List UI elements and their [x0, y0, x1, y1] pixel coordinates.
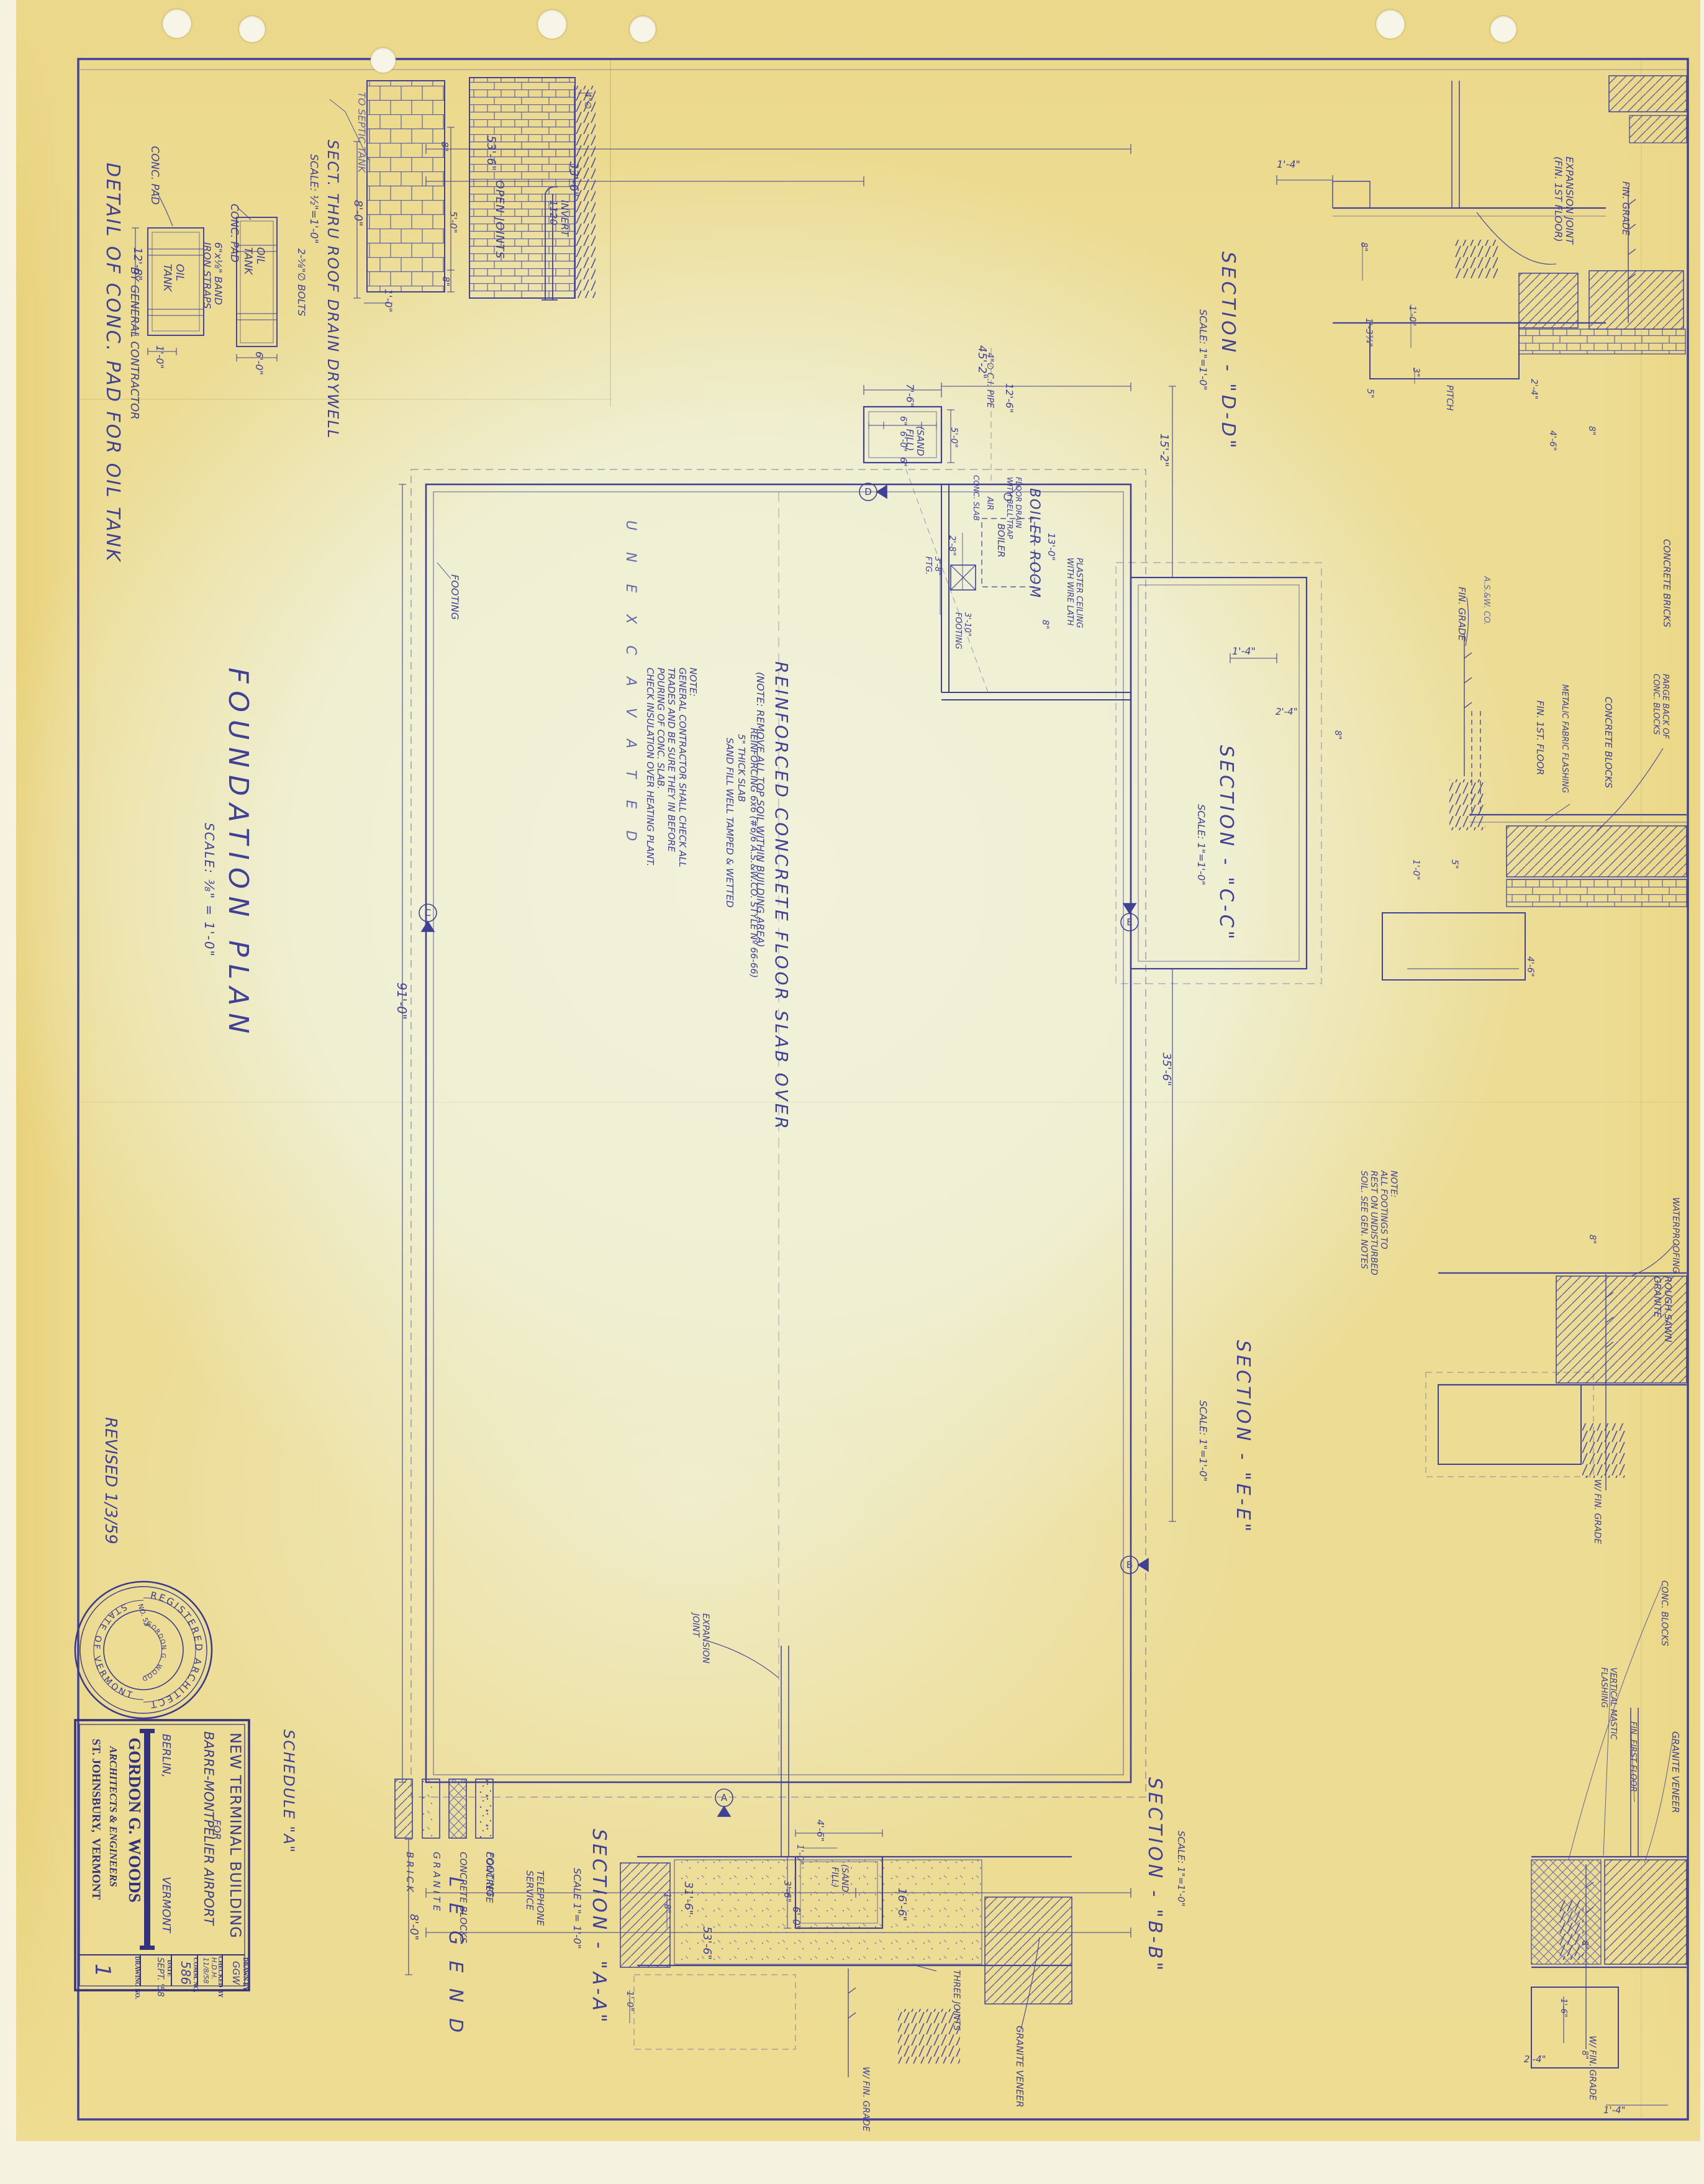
section-ee-lines	[1426, 1243, 1687, 1490]
oil-pad-title: DETAIL OF CONC. PAD FOR OIL TANK	[102, 163, 124, 563]
asw-note: A.S.&W. CO.	[1481, 576, 1490, 625]
drywell-lines	[330, 78, 596, 303]
punch-hole	[538, 10, 566, 39]
linework: D C E B A	[16, 0, 1704, 2184]
slab-note-thickness: 5" THICK SLAB	[736, 734, 746, 802]
dim-53-6-bottom: 53'-6"	[700, 1926, 713, 1960]
svg-text:GORDON G. WOODS: GORDON G. WOODS	[140, 1520, 1704, 1682]
dim-1-4-cc: 1'-4"	[1232, 646, 1256, 657]
dim-31-6: 31'-6"	[681, 1882, 694, 1915]
oil-tank-label-1: OIL TANK	[161, 264, 185, 291]
three-joints-label: THREE JOINTS	[951, 1970, 961, 2031]
ci-pipe-note: 4"∅ C.I. PIPE	[985, 353, 995, 408]
fin-grade-bb: W/ FIN. GRADE	[1587, 2036, 1597, 2100]
dim-16-6: 16'-6"	[895, 1888, 908, 1921]
boiler-room-label: BOILER ROOM	[1026, 488, 1042, 599]
dim-8-0-drywell: 8'-0"	[351, 200, 364, 227]
dim-2-4-dd: 2'-4"	[1529, 379, 1539, 399]
dim-1-0-cc: 1'-0"	[1411, 859, 1421, 880]
tb-project-line1: NEW TERMINAL BUILDING	[226, 1733, 243, 1939]
concrete-blocks-label-cc: CONCRETE BLOCKS	[1603, 697, 1613, 788]
svg-text:A: A	[721, 1792, 728, 1803]
fold-crease-vertical-right	[1641, 59, 1642, 2119]
gc-note: NOTE: GENERAL CONTRACTOR SHALL CHECK ALL…	[645, 668, 698, 867]
schedule-a-label: SCHEDULE "A"	[279, 1729, 297, 1854]
dim-6-0-bottom: 6'-0"	[791, 1906, 802, 1930]
fin-first-floor-bb: FIN. FIRST FLOOR	[1628, 1721, 1637, 1792]
conc-blocks-bb: CONC. BLOCKS	[1659, 1580, 1669, 1646]
fin-grade-aa: W/ FIN. GRADE	[861, 2067, 871, 2131]
drawing-sheet: D C E B A	[16, 0, 1700, 2141]
section-aa-lines	[620, 1641, 1072, 2077]
dim-33-6: 33'-6"	[566, 161, 580, 197]
slab-note-reinforcing: REINFORCING 6x6 (#6/6 A.S.&W.CO. STYLE N…	[748, 728, 759, 978]
dim-3-6-pit: 3'-6"	[782, 1880, 792, 1903]
metalic-flashing-label: METALIC FABRIC FLASHING	[1559, 684, 1569, 793]
tb-firm-city: ST. JOHNSBURY, VERMONT	[89, 1739, 102, 1900]
tb-date-label: DATE	[166, 1960, 173, 1977]
dim-2-4-cc: 2'-4"	[1276, 707, 1298, 717]
svg-text:E: E	[1126, 917, 1132, 928]
section-dd-scale: SCALE: 1"=1'-0"	[1197, 309, 1208, 391]
dim-8b-bb: 8"	[1579, 2050, 1588, 2059]
tb-dwg-label: DRAWING NO.	[134, 1956, 141, 1999]
dim-8a-bb: 8"	[1579, 1941, 1588, 1949]
section-ee-title: SECTION - "E-E"	[1232, 1340, 1254, 1534]
punch-hole	[163, 9, 191, 38]
dim-1-0-oilpad: 1'-0"	[154, 345, 165, 369]
open-joints-label: OPEN JOINTS	[492, 180, 505, 259]
dim-2-4-bb: 2'-4"	[1524, 2054, 1546, 2065]
foundation-plan-title: FOUNDATION PLAN	[222, 668, 253, 1041]
foundation-plan-scale: SCALE: ⅜" = 1'-0"	[202, 823, 216, 958]
dim-1-0-dd: 1'-0"	[1407, 306, 1417, 326]
legend-swatch-concrete	[476, 1779, 493, 1838]
dim-1-4-dd: 1'-4"	[1277, 159, 1300, 170]
footing-label-1: FOOTING	[449, 574, 460, 620]
oil-pad-conc-pad-label-2: CONC. PAD	[227, 204, 240, 263]
dim-1-0-aa: 1'-0"	[625, 1991, 635, 2011]
tb-state: VERMONT	[159, 1877, 172, 1933]
foundation-plan-lines	[399, 144, 1321, 1975]
section-aa-title: SECTION - "A-A"	[588, 1829, 610, 2026]
fin-grade-dd: FIN. GRADE	[1620, 181, 1631, 235]
granite-veneer-bb: GRANITE VENEER	[1670, 1731, 1680, 1813]
punch-hole	[239, 16, 265, 42]
boiler-label: BOILER	[995, 523, 1006, 558]
telephone-service-note: TELEPHONE SERVICE	[524, 1870, 546, 1926]
oil-pad-by: BY GENERAL CONTRACTOR	[127, 267, 140, 420]
tb-checked-value: H.D.H. 11/8/58	[202, 1957, 217, 1983]
fin-first-floor-cc: FIN. 1ST. FLOOR	[1534, 700, 1545, 775]
dim-8-cc: 8"	[1333, 730, 1343, 740]
tb-city: BERLIN,	[159, 1734, 172, 1778]
dim-1-6-bb: 1'-6"	[1558, 1998, 1567, 2018]
dim-5-dd: 5"	[1365, 389, 1375, 398]
sheet-border	[78, 59, 1688, 2119]
dim-8b-dd: 8"	[1587, 426, 1597, 435]
dim-12-8: 12'-8"	[130, 247, 143, 281]
punch-hole	[371, 48, 396, 73]
punch-hole	[1490, 16, 1516, 42]
section-cc-scale: SCALE: 1"=1'-0"	[1195, 804, 1207, 886]
drywell-title: SECT. THRU ROOF DRAIN DRYWELL	[324, 140, 341, 439]
legend-swatches	[395, 1779, 493, 1838]
dim-5-0-drywell: 5'-0"	[448, 211, 458, 233]
dim-3-8-ftg: 3'-8" FTG.	[923, 556, 941, 576]
section-bb-lines	[1531, 1585, 1687, 2105]
legend-swatch-granite	[422, 1779, 440, 1838]
expansion-joint-aa: EXPANSION JOINT	[691, 1613, 710, 1664]
legend-swatch-brick	[395, 1779, 412, 1838]
dim-8in-b: 8"	[440, 276, 451, 286]
oil-tank-label-2: OIL TANK	[242, 247, 266, 274]
dim-4-6-cc: 4'-6"	[1525, 956, 1535, 977]
fold-crease-middle	[78, 1102, 1688, 1103]
conc-slab-note: CONC. SLAB	[971, 475, 980, 521]
dim-12-6: 12'-6"	[1004, 383, 1015, 413]
concrete-bricks-label: CONCRETE BRICKS	[1661, 539, 1672, 627]
drywell-bolts: 2-⅝"∅ BOLTS	[296, 248, 307, 316]
dim-8-dd: 8"	[1359, 242, 1369, 251]
dim-35-6: 35'-6"	[1159, 1053, 1172, 1086]
air-label: AIR	[984, 497, 994, 510]
legend-label-concrete: CONCRETE	[484, 1852, 494, 1903]
punch-hole	[630, 16, 656, 42]
dim-53-6-top: 53'-6"	[484, 135, 497, 171]
dim-8in-a: 8"	[439, 142, 450, 152]
granite-veneer-aa: GRANITE VENEER	[1014, 2026, 1025, 2108]
sand-fill-label-bottom: (SAND FILL)	[830, 1864, 850, 1892]
fin-grade-cc: FIN. GRADE	[1456, 587, 1467, 641]
mastic-flashing-bb: VERTICAL MASTIC FLASHING	[1598, 1667, 1617, 1739]
svg-text:D: D	[864, 486, 872, 497]
pitch-label: PITCH	[1444, 385, 1454, 410]
dim-1-3-34-dd: 1'-3¾"	[1364, 318, 1374, 347]
dim-2-8: 2'-8"	[947, 535, 957, 556]
slab-note-title: REINFORCED CONCRETE FLOOR SLAB OVER	[771, 661, 791, 1131]
dim-1-4-bb: 1'-4"	[1603, 2105, 1626, 2116]
tb-dwg-value: 1	[90, 1964, 114, 1977]
section-cc-lines	[1230, 597, 1687, 980]
svg-text:NO. 53: NO. 53	[136, 1603, 151, 1628]
sand-fill-label-top: (SAND FILL)	[904, 426, 926, 456]
dim-3-10-footing: 3'-10" FOOTING	[953, 612, 971, 650]
dim-4dia: 4"∅	[582, 92, 592, 109]
dim-15-2: 15'-2"	[1157, 433, 1170, 467]
plaster-ceiling-note: PLASTER CEILING WITH WIRE LATH	[1064, 558, 1083, 628]
svg-text:B: B	[1126, 1559, 1133, 1570]
dim-1-0b-aa: 1'-0"	[795, 1844, 805, 1865]
tb-project-line2: BARRE-MONTPELIER AIRPORT	[201, 1731, 216, 1925]
legend-label-granite: G R A N I T E	[431, 1852, 442, 1911]
dim-5-0-pit: 5'-0"	[949, 427, 959, 448]
tb-date-value: SEPT. '58	[155, 1957, 165, 1997]
dim-4-6-pit: 4'-6"	[815, 1819, 825, 1842]
drywell-scale: SCALE: ½"=1'-0"	[307, 154, 319, 243]
footings-note: NOTE: ALL FOOTINGS TO REST ON UNDISTURBE…	[1359, 1171, 1398, 1276]
legend-label-concrete-blocks: CONCRETE BLOCKS	[458, 1852, 468, 1943]
septic-tank-note: TO SEPTIC TANK	[356, 92, 367, 173]
dim-91-0: 91'-0"	[394, 982, 409, 1020]
dim-1-0-drywell: 1'-0"	[383, 289, 394, 312]
revised-note: REVISED 1/3/59	[101, 1417, 119, 1544]
section-bb-title: SECTION - "B-B"	[1144, 1777, 1166, 1973]
slab-note-sandfill: SAND FILL WELL TAMPED & WETTED	[724, 738, 735, 908]
svg-text:C: C	[425, 907, 431, 918]
dim-5-cc: 5"	[1449, 859, 1459, 869]
fin-grade-ee: W/ FIN. GRADE	[1592, 1479, 1602, 1544]
tb-drawn-label: DRAWN BY	[242, 1957, 249, 1991]
dim-1-8-aa: 1'-8"	[662, 1893, 672, 1913]
dim-3-dd: 3"	[1411, 368, 1421, 377]
dim-6-0-oilpad: 6'-0"	[253, 351, 265, 375]
fold-crease-horizontal	[78, 399, 611, 400]
dim-7-6: 7'-6"	[904, 384, 915, 407]
section-bb-scale: SCALE: 1"=1'-0"	[1176, 1831, 1186, 1906]
rough-sawn-granite-label: ROUGH SAWN GRANITE	[1652, 1276, 1674, 1342]
dim-8-ee: 8"	[1587, 1235, 1597, 1244]
waterproofing-label: WATERPROOFING	[1670, 1197, 1680, 1274]
parge-note: PARGE BACK OF CONC. BLOCKS	[1651, 674, 1669, 739]
boiler-room-size: 13'-0"	[1046, 533, 1056, 561]
invert-label: INVERT 1120	[547, 200, 570, 237]
svg-text:STATE OF VERMONT: STATE OF VERMONT	[91, 1602, 135, 1701]
dim-8-0-bottom: 8'-0"	[407, 1914, 420, 1941]
dim-4-6-dd: 4'-6"	[1548, 430, 1557, 451]
section-ee-scale: SCALE: 1"=1'-0"	[1197, 1400, 1208, 1482]
section-dd-title: SECTION - "D-D"	[1217, 251, 1239, 451]
tb-firm-sub: ARCHITECTS & ENGINEERS	[107, 1746, 119, 1887]
legend-label-brick: B R I C K	[404, 1852, 415, 1892]
tb-comm-value: 586	[178, 1961, 193, 1985]
tb-drawn-value: GGW	[230, 1961, 241, 1985]
expansion-joint-note-dd: EXPANSION JOINT (FIN. 1ST FLOOR)	[1552, 156, 1575, 244]
blueprint-scan: D C E B A	[0, 0, 1704, 2184]
dim-8in-boiler: 8"	[1040, 620, 1050, 629]
section-aa-scale: SCALE 1"= 1'-0"	[571, 1868, 582, 1949]
oil-pad-conc-pad-label-1: CONC. PAD	[148, 146, 160, 205]
fold-crease-vertical-top	[610, 59, 611, 407]
band-iron-straps-label: 6"x⅛" BAND IRON STRAPS	[201, 242, 224, 309]
unexcavated-label: U N E X C A V A T E D	[623, 520, 638, 850]
punch-hole	[1376, 10, 1405, 39]
floor-drain-note: FLOOR DRAIN WITH BELL TRAP	[1005, 477, 1022, 539]
section-cc-title: SECTION - "C-C"	[1215, 745, 1237, 942]
legend-swatch-concrete-blocks	[449, 1779, 466, 1838]
tb-firm-name: GORDON G. WOODS	[125, 1738, 144, 1903]
